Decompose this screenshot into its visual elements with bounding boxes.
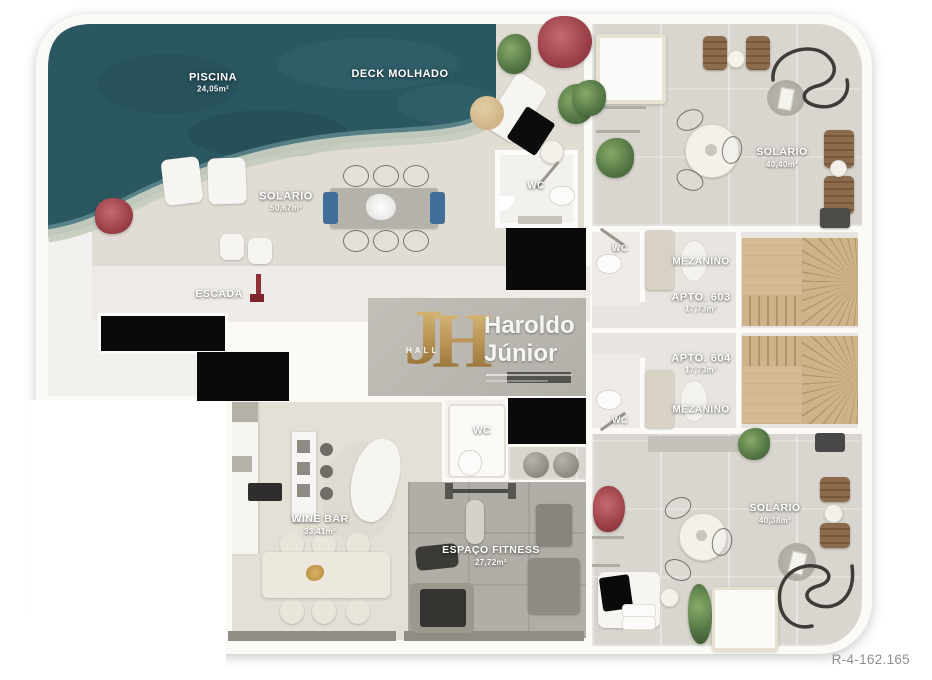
kitchen-cabinet-mid [232, 456, 252, 472]
grill-bottom [815, 433, 845, 452]
wc-deck-label: WC [527, 180, 545, 193]
solario-deck-area: 50,67m² [259, 204, 313, 214]
toilet-604 [596, 390, 622, 410]
watermark-name-1: Haroldo [484, 312, 575, 340]
bar-stool [320, 465, 333, 478]
dining-chair [312, 598, 336, 624]
wire-chair [343, 230, 369, 252]
apto-604-area: 17,73m² [671, 366, 730, 376]
solario-deck-name: SOLÁRIO [259, 191, 313, 203]
stairs-604-wall [736, 333, 741, 428]
mezanino-604-name: MEZANINO [672, 405, 729, 416]
watermark-name-2: Júnior [484, 340, 557, 368]
exercise-ball [553, 452, 579, 478]
pouf-tan [470, 96, 504, 130]
escada-label: ESCADA [195, 288, 242, 302]
table-centerpiece [366, 194, 396, 220]
side-table-white [727, 50, 745, 68]
bar-stool [320, 443, 333, 456]
solario-bottom-label: SOLÁRIO 40,38m² [749, 502, 800, 526]
island-appliance [297, 484, 310, 497]
pool-lounger-2 [207, 157, 247, 204]
piscina-name: PISCINA [189, 72, 237, 84]
side-table-white [830, 160, 847, 177]
window-sill-winebar [228, 631, 396, 641]
toilet-wc-fitness [458, 450, 482, 476]
piscina-area: 24,05m² [189, 85, 237, 95]
barbell-plate [508, 483, 516, 499]
bar-stool [320, 487, 333, 500]
deck-armchair-2 [248, 238, 272, 264]
green-plant-corner-1 [497, 34, 531, 74]
deck-chair-blue-left [323, 192, 338, 224]
solario-deck-label: SOLÁRIO 50,67m² [259, 190, 313, 215]
piscina-label: PISCINA 24,05m² [189, 71, 237, 96]
apto-603-label: APTO. 603 17,73m² [671, 291, 730, 316]
wire-chair [403, 230, 429, 252]
stairs-604-winder [802, 336, 858, 424]
toilet-wc-deck [549, 186, 575, 206]
pillow [622, 616, 656, 630]
green-plant-terrace [738, 428, 770, 460]
barbell-plate [445, 483, 453, 499]
espaco-fitness-label: ESPAÇO FITNESS 27,72m² [442, 544, 540, 568]
wire-chair [373, 165, 399, 187]
apto-604-name: APTO. 604 [671, 353, 730, 365]
solario-bottom-name: SOLÁRIO [749, 502, 800, 514]
floor-opening-large [197, 352, 289, 401]
wc-deck-name: WC [527, 181, 545, 192]
solario-top-area: 40,40m² [756, 160, 807, 170]
sofa-603 [645, 230, 674, 290]
stairs-603-landing [742, 238, 802, 296]
terrace-bench [648, 436, 740, 452]
wc-fitness-label: WC [473, 425, 491, 438]
espaco-fitness-name: ESPAÇO FITNESS [442, 544, 540, 556]
stairs-603-winder [802, 238, 858, 326]
massage-bed [596, 34, 666, 104]
lounge-chair-brown [820, 477, 850, 502]
espaco-fitness-area: 27,72m² [442, 558, 540, 568]
watermark: J H HALL Haroldo Júnior [398, 298, 598, 394]
stairs-603-flight [742, 296, 802, 326]
curved-bench-top [763, 38, 858, 118]
wine-bar-table [262, 552, 390, 598]
gym-bench [466, 500, 484, 544]
towel-rail [592, 564, 620, 567]
lounge-chair-brown [703, 36, 727, 70]
deck-armchair-1 [220, 234, 244, 260]
solario-top-name: SOLÁRIO [756, 146, 807, 158]
wc-604-label: WC [612, 415, 628, 427]
wc-fitness-name: WC [473, 426, 491, 437]
reference-code: R-4-162.165 [790, 652, 910, 667]
wc-604-name: WC [612, 415, 628, 425]
tall-green-plant [688, 584, 712, 644]
deck-molhado-name: DECK MOLHADO [351, 68, 448, 80]
mezanino-603-name: MEZANINO [672, 257, 729, 268]
wc-603-name: WC [612, 243, 628, 253]
wc-deck-counter [518, 216, 562, 224]
treadmill-deck [420, 589, 466, 627]
watermark-tagline-bar [486, 374, 572, 376]
barbell-bar [448, 489, 514, 493]
table-center [705, 144, 717, 156]
kitchen-cabinet-top [232, 402, 258, 422]
solario-bottom-area: 40,38m² [749, 516, 800, 526]
green-plant-shower-1 [572, 80, 606, 116]
wire-chair [373, 230, 399, 252]
plan-cutout [26, 400, 226, 670]
deck-chair-blue-right [430, 192, 445, 224]
apto-604-label: APTO. 604 17,73m² [671, 352, 730, 377]
exercise-ball [523, 452, 549, 478]
wine-bar-name: WINE BAR [291, 513, 348, 525]
pouf-white [660, 588, 679, 607]
side-table-white [824, 504, 843, 523]
wire-chair [343, 165, 369, 187]
towel-rail [596, 130, 640, 133]
kitchen-counter [232, 402, 258, 554]
mezanino-603-label: MEZANINO [672, 256, 729, 269]
floor-opening-small [98, 313, 228, 354]
toilet-603 [596, 254, 622, 274]
dining-chair [280, 598, 304, 624]
wine-bar-label: WINE BAR 33,41m² [291, 513, 348, 537]
fire-extinguisher-base [250, 294, 264, 302]
pool-lounger-1 [160, 156, 203, 206]
stairs-604-landing [742, 366, 802, 424]
cooktop [248, 483, 282, 501]
grill-top [820, 208, 850, 228]
sofa-604 [645, 370, 674, 428]
green-plant-shower-2 [596, 138, 634, 178]
dining-chair [346, 598, 370, 624]
table-center [696, 530, 707, 541]
apto-603-area: 17,73m² [671, 305, 730, 315]
towel-rail [592, 536, 624, 539]
apto-603-name: APTO. 603 [671, 292, 730, 304]
solario-top-label: SOLÁRIO 40,40m² [756, 146, 807, 170]
mezanino-604-label: MEZANINO [672, 404, 729, 417]
fire-extinguisher [256, 274, 261, 296]
floorplan-canvas: PISCINA 24,05m² DECK MOLHADO SOLÁRIO 50,… [0, 0, 932, 680]
side-table-white [540, 140, 564, 164]
island-appliance [297, 462, 310, 475]
stairs-603-wall [736, 232, 741, 328]
curved-bench-bottom [768, 552, 860, 642]
watermark-hall: HALL [406, 346, 439, 355]
escada-name: ESCADA [195, 288, 242, 300]
wc-603-label: WC [612, 243, 628, 255]
watermark-tagline-bar2 [486, 380, 548, 382]
wire-chair [403, 165, 429, 187]
wine-bar-area: 33,41m² [291, 527, 348, 537]
deck-molhado-label: DECK MOLHADO [351, 67, 448, 81]
island-sink [297, 440, 310, 453]
stairs-604-flight [742, 336, 802, 366]
lounge-chair-brown [820, 523, 850, 548]
gym-machine-right [536, 504, 572, 546]
elevator-shaft-bottom [508, 398, 586, 444]
